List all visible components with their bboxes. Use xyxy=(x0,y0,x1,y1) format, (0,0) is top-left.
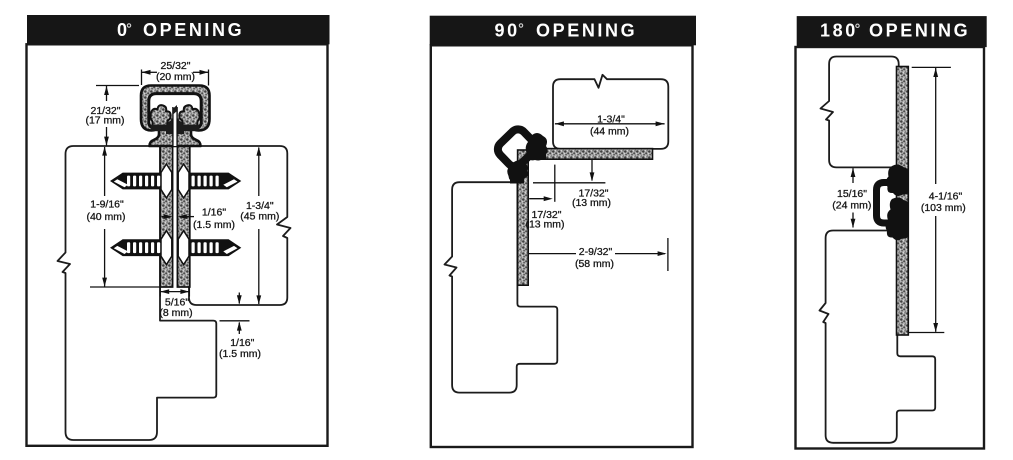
svg-text:(45 mm): (45 mm) xyxy=(240,211,279,223)
svg-text:(103 mm): (103 mm) xyxy=(921,202,966,214)
svg-text:(44 mm): (44 mm) xyxy=(590,125,629,137)
svg-text:(40 mm): (40 mm) xyxy=(86,211,125,223)
svg-text:(58 mm): (58 mm) xyxy=(575,258,614,270)
svg-text:(13 mm): (13 mm) xyxy=(525,219,564,231)
svg-text:OPENING: OPENING xyxy=(143,20,244,40)
svg-text:1/16": 1/16" xyxy=(202,207,226,219)
svg-text:90: 90 xyxy=(495,20,520,40)
svg-text:(24 mm): (24 mm) xyxy=(832,200,871,212)
svg-text:180: 180 xyxy=(820,21,858,41)
svg-text:OPENING: OPENING xyxy=(536,20,637,40)
svg-text:(8 mm): (8 mm) xyxy=(159,307,192,319)
svg-text:(17 mm): (17 mm) xyxy=(85,115,124,127)
svg-text:2-9/32": 2-9/32" xyxy=(579,246,613,258)
svg-text:0: 0 xyxy=(117,20,130,40)
svg-text:(13 mm): (13 mm) xyxy=(572,197,611,209)
svg-text:(20 mm): (20 mm) xyxy=(156,71,195,83)
svg-text:4-1/16": 4-1/16" xyxy=(929,191,963,203)
svg-text:(1.5 mm): (1.5 mm) xyxy=(193,219,235,231)
svg-text:(1.5 mm): (1.5 mm) xyxy=(219,348,261,360)
svg-text:1-9/16": 1-9/16" xyxy=(90,199,124,211)
svg-text:OPENING: OPENING xyxy=(869,21,970,41)
svg-text:15/16": 15/16" xyxy=(837,188,867,200)
svg-text:1-3/4": 1-3/4" xyxy=(597,113,625,125)
